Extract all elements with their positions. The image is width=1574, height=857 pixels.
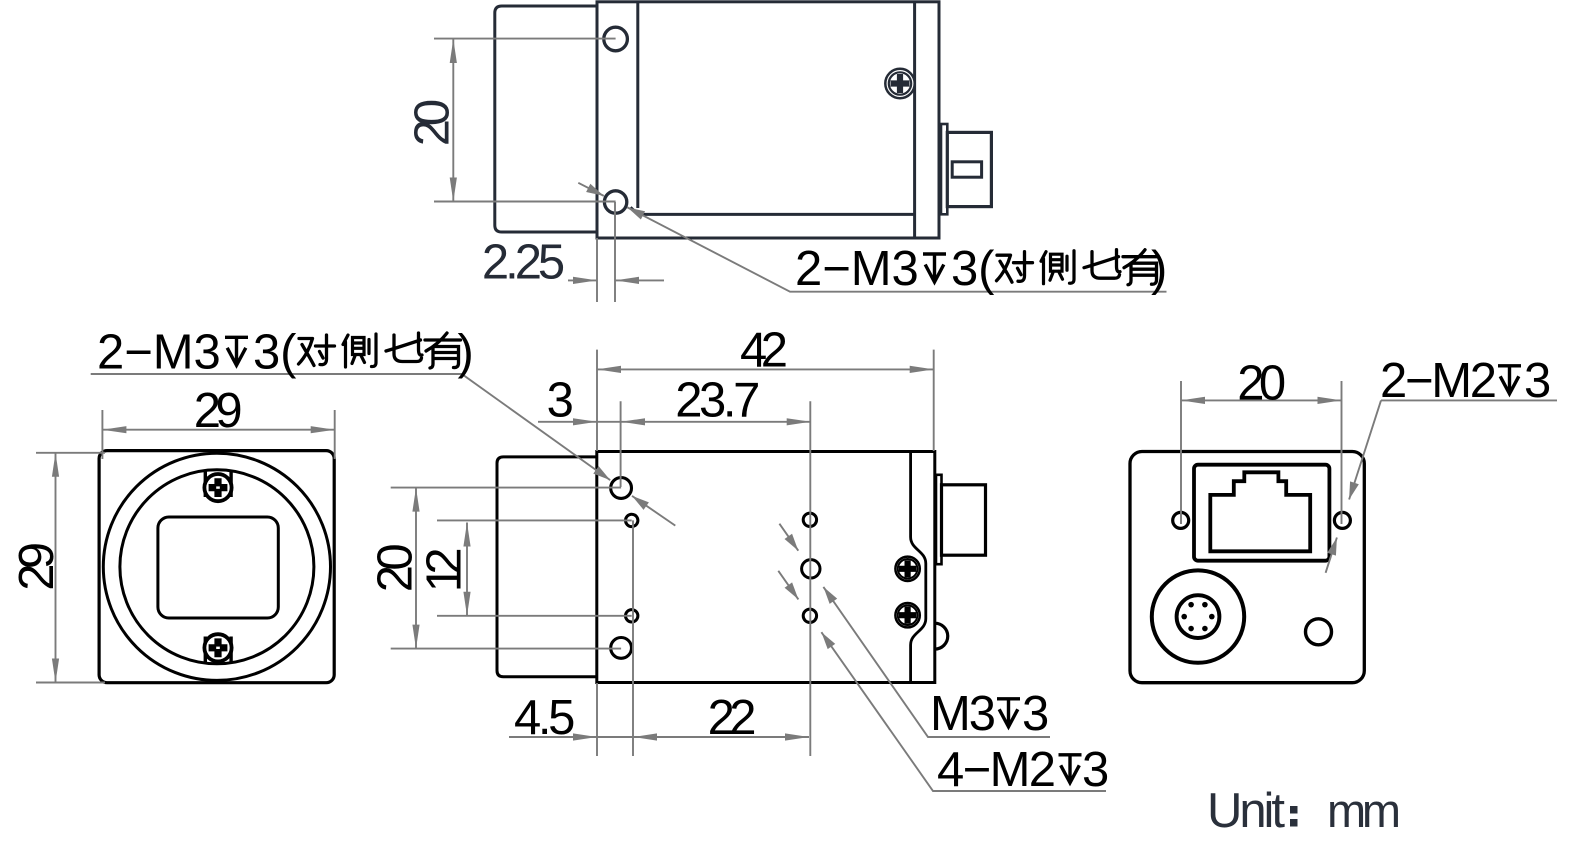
svg-text:3: 3 bbox=[1082, 743, 1109, 797]
svg-text:M3: M3 bbox=[930, 687, 996, 741]
svg-text:20: 20 bbox=[369, 543, 423, 592]
svg-text:): ) bbox=[1151, 242, 1167, 296]
svg-text:mm: mm bbox=[1327, 784, 1401, 837]
svg-text:3: 3 bbox=[1524, 354, 1551, 408]
svg-text:2−M3: 2−M3 bbox=[795, 242, 919, 296]
svg-text:22: 22 bbox=[708, 691, 757, 745]
svg-text:42: 42 bbox=[740, 324, 788, 378]
svg-text:2.25: 2.25 bbox=[482, 235, 565, 289]
svg-text:Unit: Unit bbox=[1207, 784, 1285, 838]
svg-text:29: 29 bbox=[10, 542, 64, 591]
svg-text:4−M2: 4−M2 bbox=[937, 743, 1056, 797]
svg-text:12: 12 bbox=[418, 547, 472, 592]
svg-text:20: 20 bbox=[1237, 357, 1286, 411]
svg-text:4.5: 4.5 bbox=[514, 691, 575, 745]
svg-text:20: 20 bbox=[406, 99, 460, 146]
svg-text:29: 29 bbox=[194, 384, 243, 438]
svg-text:3(: 3( bbox=[253, 326, 297, 380]
svg-text:3(: 3( bbox=[951, 242, 995, 296]
svg-text:3: 3 bbox=[547, 374, 574, 428]
svg-text:): ) bbox=[458, 326, 474, 380]
svg-text:2−M2: 2−M2 bbox=[1380, 354, 1497, 408]
svg-text:2−M3: 2−M3 bbox=[97, 326, 221, 380]
svg-text:23.7: 23.7 bbox=[675, 374, 760, 428]
svg-text:3: 3 bbox=[1022, 687, 1049, 741]
